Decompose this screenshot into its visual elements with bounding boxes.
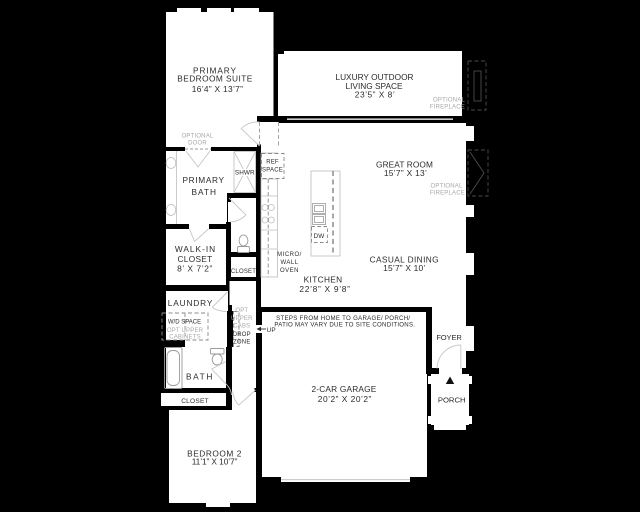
svg-text:15’7” X 13’: 15’7” X 13’ [384, 168, 427, 178]
svg-text:FIREPLACE: FIREPLACE [430, 104, 465, 110]
svg-text:ZONE: ZONE [233, 340, 250, 346]
svg-text:REF: REF [266, 159, 279, 165]
svg-text:OPTIONAL: OPTIONAL [433, 98, 465, 104]
svg-text:FOYER: FOYER [436, 333, 462, 342]
svg-text:OPT UPPER: OPT UPPER [167, 328, 204, 334]
svg-text:KITCHEN: KITCHEN [304, 274, 343, 284]
svg-text:CLOSET: CLOSET [181, 398, 209, 405]
svg-text:BEDROOM SUITE: BEDROOM SUITE [177, 73, 252, 83]
svg-text:CLOSET: CLOSET [178, 254, 213, 264]
svg-text:PRIMARY: PRIMARY [182, 175, 224, 185]
svg-text:8’ X 7’2”: 8’ X 7’2” [177, 264, 213, 274]
svg-text:CABINETS: CABINETS [169, 335, 201, 341]
svg-text:CABS: CABS [233, 324, 250, 330]
svg-text:WALL: WALL [280, 260, 298, 266]
svg-text:DOOR: DOOR [188, 141, 207, 147]
svg-text:BATH: BATH [191, 187, 217, 197]
svg-text:DW: DW [313, 233, 325, 240]
svg-text:2-CAR GARAGE: 2-CAR GARAGE [311, 384, 376, 394]
svg-text:15’7” X 10’: 15’7” X 10’ [383, 263, 425, 273]
svg-text:SPACE: SPACE [262, 167, 283, 173]
svg-text:22’8” X 9’8”: 22’8” X 9’8” [299, 284, 350, 294]
svg-text:LAUNDRY: LAUNDRY [168, 298, 213, 308]
svg-text:OVEN: OVEN [280, 268, 299, 274]
svg-text:OPTIONAL: OPTIONAL [182, 134, 214, 140]
svg-text:DROP: DROP [233, 332, 251, 338]
svg-text:BATH: BATH [186, 372, 214, 382]
svg-text:CLOSET: CLOSET [231, 269, 256, 275]
svg-text:OPTIONAL: OPTIONAL [431, 184, 463, 190]
svg-text:WALK-IN: WALK-IN [175, 244, 216, 254]
svg-text:SHWR: SHWR [235, 170, 255, 177]
svg-text:23’5” X 8’: 23’5” X 8’ [355, 90, 395, 100]
svg-text:MICRO/: MICRO/ [277, 252, 302, 258]
svg-text:16’4” X 13’7”: 16’4” X 13’7” [192, 84, 243, 94]
svg-text:PATIO MAY VARY DUE TO SITE CON: PATIO MAY VARY DUE TO SITE CONDITIONS. [274, 321, 415, 328]
svg-text:PORCH: PORCH [438, 396, 466, 405]
svg-text:UPPER: UPPER [231, 316, 253, 322]
svg-text:OPT: OPT [235, 308, 248, 314]
svg-text:W/D SPACE: W/D SPACE [168, 320, 201, 326]
svg-text:11’1” X 10’7”: 11’1” X 10’7” [192, 456, 238, 466]
svg-text:20’2” X 20’2”: 20’2” X 20’2” [318, 394, 372, 404]
svg-text:FIREPLACE: FIREPLACE [430, 191, 465, 197]
